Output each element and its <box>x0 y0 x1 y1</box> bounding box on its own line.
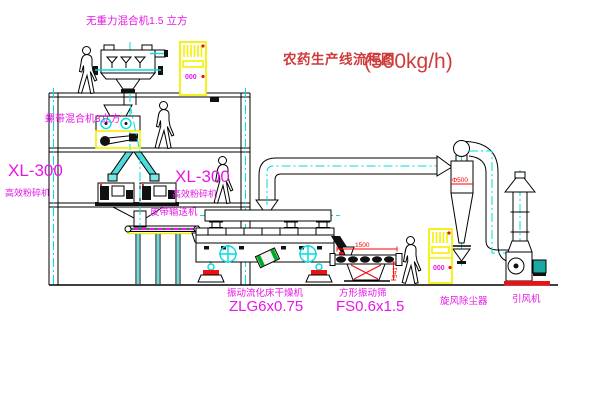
dim-screen-length: 1500 <box>355 242 370 249</box>
label-mill-center-name: 高效粉碎机 <box>172 188 217 199</box>
mill-left-drawing <box>95 183 137 206</box>
induced-draft-fan-drawing <box>504 252 550 286</box>
conveyor-legs <box>136 234 180 284</box>
label-top-mixer: 无重力混合机1.5 立方 <box>86 14 188 27</box>
cabinet-display: 000 <box>433 265 445 272</box>
control-cabinet-roof: 000 <box>180 42 206 95</box>
label-fan: 引风机 <box>512 293 541 305</box>
label-screen-model: FS0.6x1.5 <box>336 298 404 315</box>
worker-figure <box>155 102 174 149</box>
label-dryer-model: ZLG6x0.75 <box>229 298 303 315</box>
indicator-light <box>448 266 451 269</box>
fan-base <box>504 281 550 286</box>
worker-figure <box>402 237 421 284</box>
dim-cyclone-diameter: Φ500 <box>452 177 468 184</box>
mill-feed-y-duct <box>108 152 159 181</box>
ceiling-fixture <box>210 97 219 102</box>
cyclone-drawing <box>451 140 473 266</box>
exhaust-duct-drawing <box>256 156 452 210</box>
label-belt-conveyor: 皮带输送机 <box>150 206 198 218</box>
label-mill-center-model: XL-300 <box>175 167 230 186</box>
label-floor2-mixer: 螺带混合机3立方 <box>45 112 121 125</box>
flow-diagram: 000 <box>0 0 600 403</box>
indicator-light <box>447 231 450 234</box>
label-mill-left-model: XL-300 <box>8 161 63 180</box>
flow-diagram-canvas: 000 <box>0 0 600 403</box>
cabinet-display: 000 <box>185 74 197 81</box>
diagram-capacity: (500kg/h) <box>364 50 453 73</box>
dryer-support-left <box>198 264 224 282</box>
indicator-light <box>201 75 204 78</box>
label-cyclone: 旋风除尘器 <box>440 295 488 307</box>
exhaust-stubs <box>209 221 330 228</box>
floor2-mixer-drawing <box>96 105 140 152</box>
label-mill-left-name: 高效粉碎机 <box>5 187 50 198</box>
dim-screen-height: 541 <box>392 267 399 278</box>
dryer-support-right <box>306 264 332 282</box>
indicator-light <box>201 44 204 47</box>
fan-motor <box>533 260 546 273</box>
fluid-bed-dryer-drawing <box>196 210 351 282</box>
control-cabinet-ground: 000 <box>429 229 452 283</box>
